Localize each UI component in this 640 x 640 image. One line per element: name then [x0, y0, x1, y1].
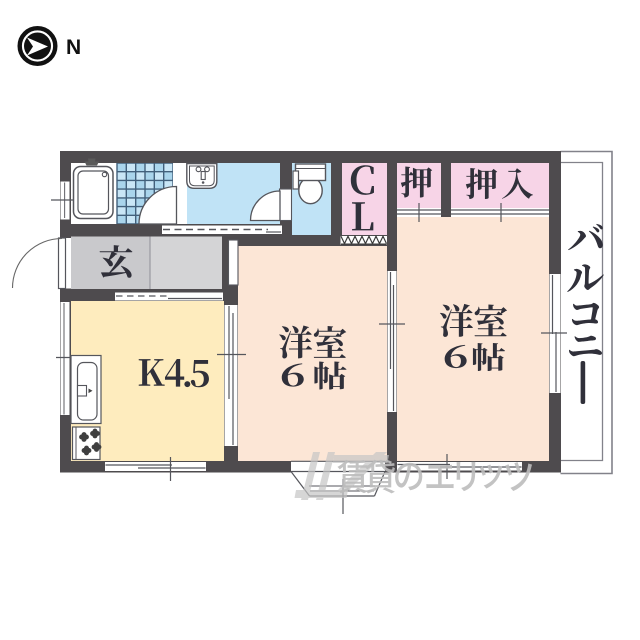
svg-text:N: N — [66, 36, 81, 59]
